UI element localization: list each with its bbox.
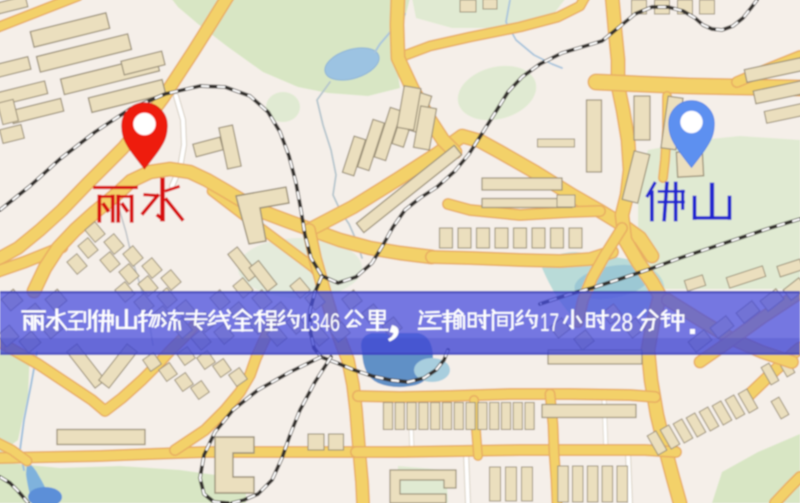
svg-text:1346: 1346: [300, 309, 340, 337]
svg-text:17: 17: [540, 309, 559, 337]
svg-text:28: 28: [610, 309, 633, 337]
